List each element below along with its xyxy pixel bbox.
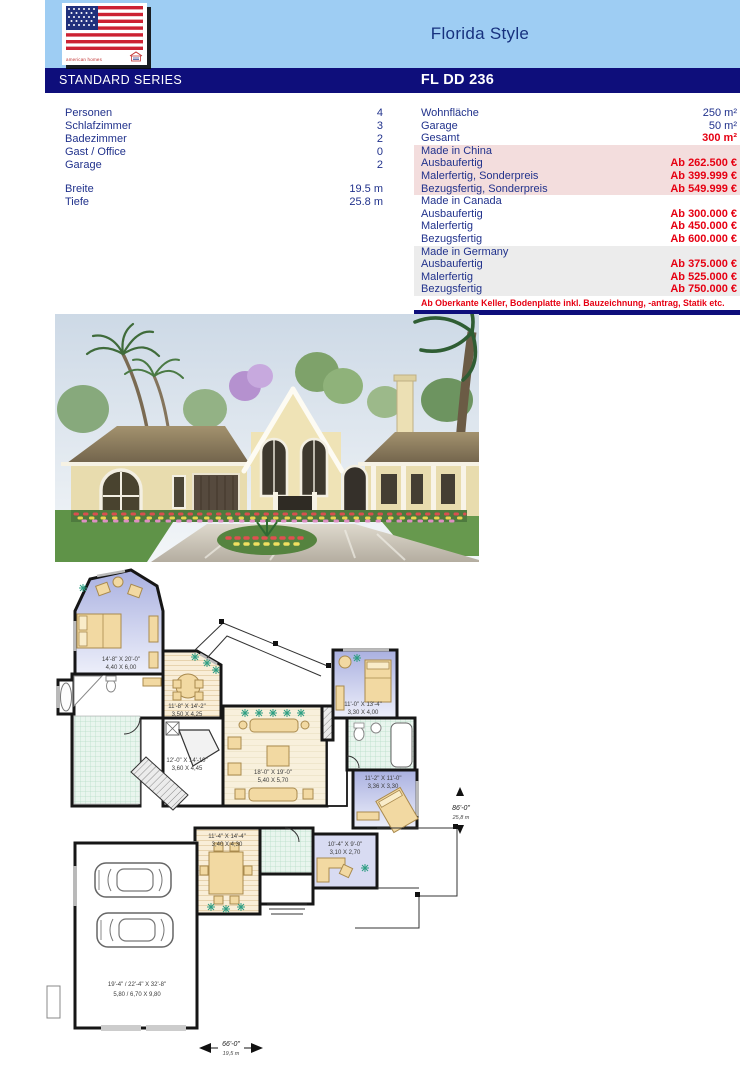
svg-text:4,40 X 6,00: 4,40 X 6,00 bbox=[106, 665, 137, 671]
svg-text:86'-0": 86'-0" bbox=[452, 805, 470, 812]
price-value: Ab 300.000 € bbox=[670, 208, 737, 221]
svg-text:11'-0" X 13'-4": 11'-0" X 13'-4" bbox=[344, 702, 381, 708]
price-value: Ab 450.000 € bbox=[670, 220, 737, 233]
price-label: Ausbaufertig bbox=[421, 157, 483, 170]
spec-row: Personen4 bbox=[65, 107, 383, 120]
room-master-bedroom: 14'-8" X 20'-0" 4,40 X 6,00 bbox=[75, 570, 163, 674]
room-bath-2 bbox=[347, 718, 415, 770]
width-dimension: 66'-0" 19,5 m bbox=[199, 1041, 263, 1057]
region-row: Made in Canada bbox=[414, 195, 740, 208]
room-garage: 19'-4" / 22'-4" X 32'-8" 5,80 / 6,70 X 9… bbox=[47, 843, 197, 1031]
area-value: 50 m² bbox=[709, 120, 737, 133]
price-row: Bezugsfertig, SonderpreisAb 549.999 € bbox=[414, 183, 740, 196]
side-window bbox=[173, 476, 185, 508]
svg-text:3,40 X 4,30: 3,40 X 4,30 bbox=[212, 842, 243, 848]
svg-text:5,80 / 6,70 X 9,80: 5,80 / 6,70 X 9,80 bbox=[113, 992, 161, 998]
laundry bbox=[322, 706, 333, 740]
area-label: Garage bbox=[421, 120, 458, 133]
price-row: Malerfertig, SonderpreisAb 399.999 € bbox=[414, 170, 740, 183]
price-group-germany: Made in Germany AusbaufertigAb 375.000 €… bbox=[414, 246, 740, 296]
spec-row: Gast / Office0 bbox=[65, 146, 383, 159]
region-label: Made in Canada bbox=[421, 195, 502, 208]
price-label: Malerfertig, Sonderpreis bbox=[421, 170, 538, 183]
price-label: Bezugsfertig bbox=[421, 283, 482, 296]
price-value: Ab 750.000 € bbox=[670, 283, 737, 296]
svg-text:18'-0" X 19'-0": 18'-0" X 19'-0" bbox=[254, 770, 292, 776]
price-row: MalerfertigAb 450.000 € bbox=[414, 220, 740, 233]
spec-label: Gast / Office bbox=[65, 146, 126, 159]
svg-text:11'-8" X 14'-2": 11'-8" X 14'-2" bbox=[168, 704, 205, 710]
svg-text:19'-4" / 22'-4" X 32'-8": 19'-4" / 22'-4" X 32'-8" bbox=[108, 982, 166, 988]
price-row: MalerfertigAb 525.000 € bbox=[414, 271, 740, 284]
spec-value: 2 bbox=[377, 133, 383, 146]
room-office: 10'-4" X 9'-0" 3,10 X 2,70 bbox=[313, 834, 377, 888]
area-row: Garage50 m² bbox=[414, 120, 740, 133]
price-label: Malerfertig bbox=[421, 271, 473, 284]
area-value-total: 300 m² bbox=[702, 132, 737, 145]
price-value: Ab 375.000 € bbox=[670, 258, 737, 271]
spec-label: Garage bbox=[65, 159, 102, 172]
spec-label: Breite bbox=[65, 183, 94, 196]
spec-value: 2 bbox=[377, 159, 383, 172]
room-kitchen: 12'-0" X 14'-10" 3,60 X 4,45 bbox=[131, 718, 223, 810]
brochure-page: Florida Style STANDARD SERIES FL DD 236 bbox=[0, 0, 740, 1085]
svg-text:11'-4" X 14'-4": 11'-4" X 14'-4" bbox=[208, 834, 245, 840]
price-label: Ausbaufertig bbox=[421, 258, 483, 271]
model-code: FL DD 236 bbox=[175, 68, 740, 93]
price-row: BezugsfertigAb 600.000 € bbox=[414, 233, 740, 246]
region-label: Made in Germany bbox=[421, 246, 508, 259]
house-rendering bbox=[55, 314, 479, 562]
price-value: Ab 262.500 € bbox=[670, 157, 737, 170]
price-label: Bezugsfertig, Sonderpreis bbox=[421, 183, 548, 196]
price-value: Ab 600.000 € bbox=[670, 233, 737, 246]
spec-row: Schlafzimmer3 bbox=[65, 120, 383, 133]
price-label: Ausbaufertig bbox=[421, 208, 483, 221]
rear-hall bbox=[260, 828, 313, 874]
spec-table-left: Personen4 Schlafzimmer3 Badezimmer2 Gast… bbox=[65, 107, 383, 209]
price-row: BezugsfertigAb 750.000 € bbox=[414, 283, 740, 296]
room-bedroom-3: 11'-2" X 11'-0" 3,36 X 3,30 bbox=[353, 770, 418, 833]
spec-label: Tiefe bbox=[65, 196, 89, 209]
spec-value: 19.5 m bbox=[349, 183, 383, 196]
porch-windows bbox=[381, 474, 455, 504]
region-row: Made in Germany bbox=[414, 246, 740, 259]
svg-text:3,30 X 4,00: 3,30 X 4,00 bbox=[348, 710, 379, 716]
region-label: Made in China bbox=[421, 145, 492, 158]
price-value: Ab 399.999 € bbox=[670, 170, 737, 183]
svg-text:14'-8" X 20'-0": 14'-8" X 20'-0" bbox=[102, 657, 140, 663]
spec-label: Schlafzimmer bbox=[65, 120, 132, 133]
price-group-canada: Made in Canada AusbaufertigAb 300.000 € … bbox=[414, 195, 740, 245]
price-value: Ab 525.000 € bbox=[670, 271, 737, 284]
svg-text:12'-0" X 14'-10": 12'-0" X 14'-10" bbox=[166, 758, 207, 764]
svg-text:3,10 X 2,70: 3,10 X 2,70 bbox=[330, 850, 361, 856]
price-row: AusbaufertigAb 300.000 € bbox=[414, 208, 740, 221]
svg-text:19,5 m: 19,5 m bbox=[223, 1051, 240, 1057]
svg-text:5,40 X 5,70: 5,40 X 5,70 bbox=[258, 778, 289, 784]
title-bar: STANDARD SERIES FL DD 236 bbox=[45, 68, 740, 93]
brand-name: american homes bbox=[66, 57, 102, 62]
svg-text:25,8 m: 25,8 m bbox=[452, 815, 470, 821]
floor-plan: 14'-8" X 20'-0" 4,40 X 6,00 11'-8" X 14'… bbox=[45, 566, 475, 1066]
spec-value: 25.8 m bbox=[349, 196, 383, 209]
page-title: Florida Style bbox=[220, 24, 740, 44]
svg-text:11'-2" X 11'-0": 11'-2" X 11'-0" bbox=[364, 776, 401, 782]
spec-row: Breite19.5 m bbox=[65, 183, 383, 196]
brand-logo: american homes bbox=[62, 3, 147, 65]
room-living: 18'-0" X 19'-0" 5,40 X 5,70 bbox=[223, 706, 327, 806]
spec-value: 4 bbox=[377, 107, 383, 120]
price-group-china: Made in China AusbaufertigAb 262.500 € M… bbox=[414, 145, 740, 195]
region-row: Made in China bbox=[414, 145, 740, 158]
foreground bbox=[55, 510, 479, 562]
foyer bbox=[260, 874, 313, 914]
area-value: 250 m² bbox=[703, 107, 737, 120]
price-footnote: Ab Oberkante Keller, Bodenplatte inkl. B… bbox=[414, 298, 740, 308]
area-row: Wohnfläche250 m² bbox=[414, 107, 740, 120]
room-dining: 11'-4" X 14'-4" 3,40 X 4,30 bbox=[195, 828, 260, 914]
us-flag-icon bbox=[66, 6, 143, 50]
price-label: Malerfertig bbox=[421, 220, 473, 233]
room-dinette: 11'-8" X 14'-2" 3,50 X 4,25 bbox=[163, 651, 221, 718]
room-bedroom-2: 11'-0" X 13'-4" 3,30 X 4,00 bbox=[333, 650, 397, 718]
chimney bbox=[397, 380, 413, 438]
price-table: Wohnfläche250 m² Garage50 m² Gesamt300 m… bbox=[414, 107, 740, 315]
price-value: Ab 549.999 € bbox=[670, 183, 737, 196]
area-row: Gesamt300 m² bbox=[414, 132, 740, 145]
spec-row: Garage2 bbox=[65, 159, 383, 172]
svg-text:3,60 X 4,45: 3,60 X 4,45 bbox=[172, 766, 203, 772]
svg-text:3,36 X 3,30: 3,36 X 3,30 bbox=[368, 784, 399, 790]
price-row: AusbaufertigAb 262.500 € bbox=[414, 157, 740, 170]
svg-text:10'-4" X 9'-0": 10'-4" X 9'-0" bbox=[328, 842, 363, 848]
area-label: Wohnfläche bbox=[421, 107, 479, 120]
spec-label: Personen bbox=[65, 107, 112, 120]
spec-row: Tiefe25.8 m bbox=[65, 196, 383, 209]
spec-row: Badezimmer2 bbox=[65, 133, 383, 146]
white-house-badge-icon bbox=[129, 51, 143, 62]
spec-value: 0 bbox=[377, 146, 383, 159]
spec-value: 3 bbox=[377, 120, 383, 133]
price-row: AusbaufertigAb 375.000 € bbox=[414, 258, 740, 271]
area-label: Gesamt bbox=[421, 132, 460, 145]
header: Florida Style bbox=[45, 0, 740, 68]
svg-text:66'-0": 66'-0" bbox=[222, 1041, 240, 1048]
series-label: STANDARD SERIES bbox=[59, 68, 182, 93]
spec-label: Badezimmer bbox=[65, 133, 127, 146]
price-label: Bezugsfertig bbox=[421, 233, 482, 246]
